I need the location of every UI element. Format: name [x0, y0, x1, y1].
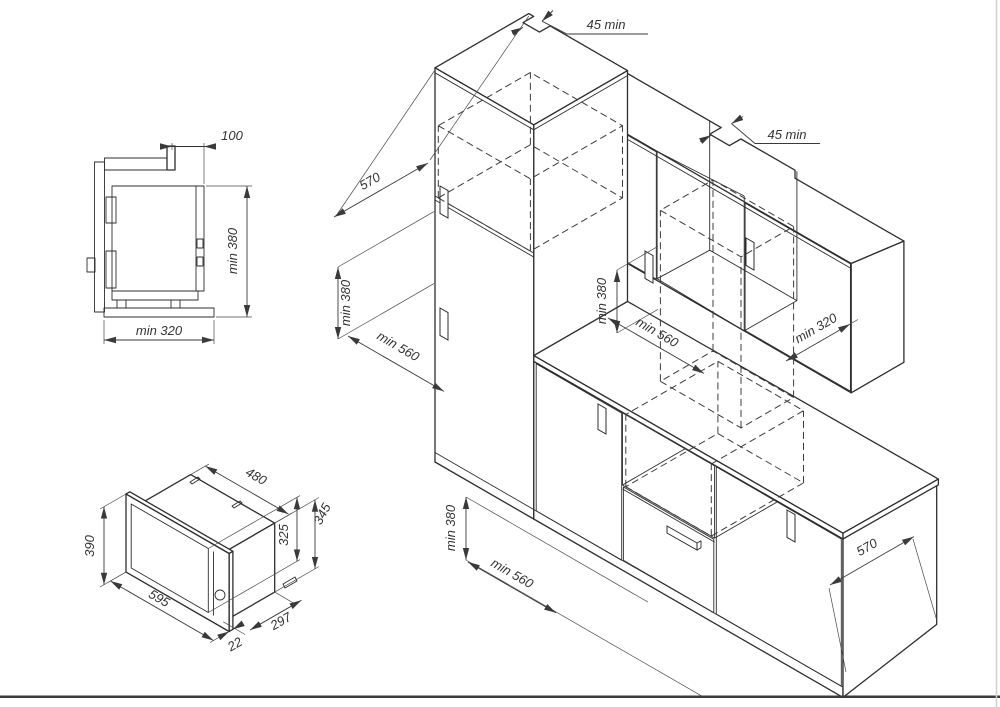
dim-frame-height: 390: [82, 534, 97, 556]
door-latch-lower: [197, 257, 203, 266]
dim-side-height: min 380: [225, 227, 240, 274]
dim-top-offset: 100: [221, 128, 243, 143]
dim-body-width: 480: [243, 464, 270, 488]
plug-tab: [87, 258, 95, 272]
dim-base-niche-width: min 560: [488, 555, 536, 591]
base-plate: [104, 308, 214, 317]
side-vent-lower: [106, 251, 116, 288]
foot-right: [171, 300, 180, 308]
dim-vent-gap-right: 45 min: [767, 127, 806, 142]
tall-door-upper-handle: [440, 186, 448, 218]
dim-side-width: min 320: [136, 323, 183, 338]
side-view: 100 min 380 min 320: [87, 128, 252, 344]
dim-tall-niche-width: min 560: [374, 328, 422, 364]
dim-frame-thickness: 22: [224, 634, 246, 655]
installation-drawing: 45 min 45 min 570 min 380 min 560 min 38…: [0, 0, 1000, 707]
base-door-right-handle: [787, 510, 795, 542]
dim-body-height: 345: [310, 500, 334, 527]
drawing-svg: 45 min 45 min 570 min 380 min 560 min 38…: [0, 0, 1000, 707]
tall-door-lower-handle: [440, 308, 448, 340]
wall-door-left-handle: [645, 251, 653, 283]
foot-left: [117, 300, 126, 308]
side-vent-upper: [106, 197, 116, 223]
dim-base-niche-height: min 380: [443, 504, 458, 551]
dim-wall-niche-height: min 380: [594, 277, 609, 324]
dim-tall-niche-height: min 380: [338, 279, 353, 326]
base-door-left-handle: [598, 404, 606, 434]
tall-front-face: [435, 68, 534, 519]
base-rail: [112, 291, 198, 300]
kitchen-view: 45 min 45 min 570 min 380 min 560 min 38…: [334, 11, 938, 698]
microwave-body: [112, 186, 204, 291]
shelf-lip: [167, 146, 175, 170]
dim-vent-gap-top: 45 min: [586, 17, 625, 32]
bottom-border: [0, 696, 1000, 699]
wall-door-right-handle: [746, 238, 754, 270]
dim-door-height: 325: [276, 523, 291, 545]
shelf-board: [105, 158, 173, 170]
wall-right-side: [851, 241, 904, 393]
dim-wall-niche-depth: min 320: [792, 310, 840, 346]
door-latch-upper: [197, 239, 203, 248]
wall-panel: [95, 162, 105, 312]
dim-body-depth: 297: [267, 609, 295, 634]
iso-view: 480 345 325 390 595 297 22: [82, 464, 334, 655]
dim-tall-depth: 570: [357, 169, 384, 193]
